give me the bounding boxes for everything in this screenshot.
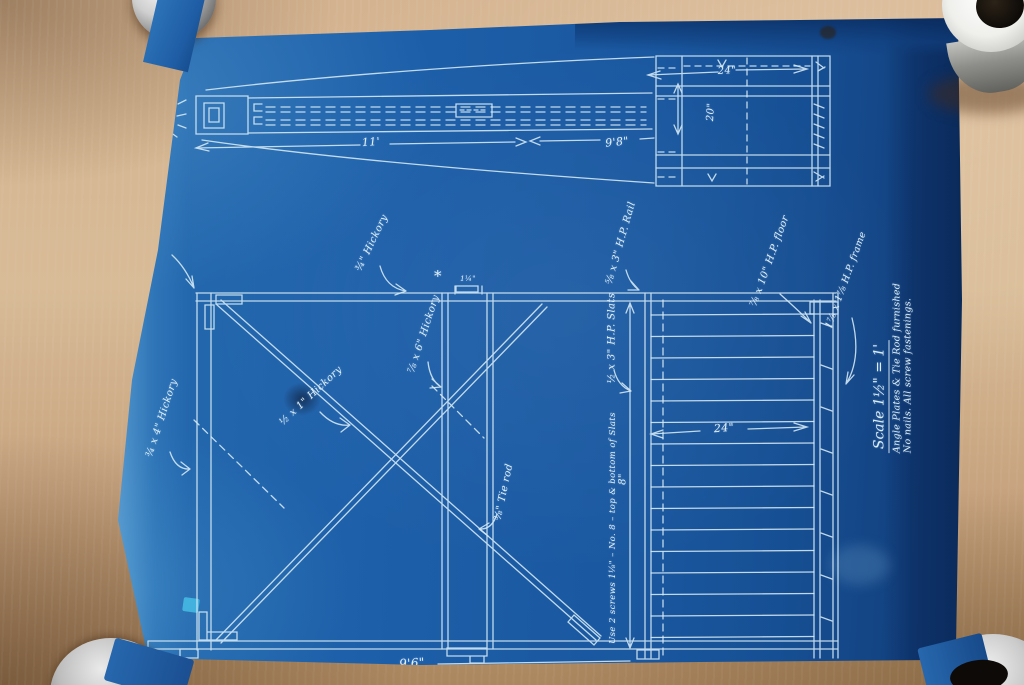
scale-note: Scale 1½" = 1' — [872, 340, 890, 453]
photo-scene: ¾ x 4" Hickory ¾" Hickory * 1¼" ⅞ x 6" H… — [0, 0, 1024, 685]
label-slats: ½ x 3" H.P. Slats — [607, 293, 618, 384]
dim-slat-length: 24" — [713, 421, 734, 435]
dim-beam-to-end: 9'8" — [605, 134, 630, 149]
dim-beam-length: 11' — [361, 135, 380, 149]
dim-end-view-height: 20" — [705, 102, 717, 121]
materials-note-2: No nails. All screw fastenings. — [903, 283, 914, 453]
materials-note-1: Angle Plates & Tie Rod furnished — [892, 283, 903, 453]
dim-end-view-width: 24" — [717, 65, 736, 77]
label-star-mark: * — [434, 267, 442, 285]
note-screws: Use 2 screws 1⅛" – No. 8 – top & bottom … — [608, 412, 618, 644]
dim-cleat-width: 1¼" — [460, 275, 476, 283]
dim-slat-gauge: 8" — [618, 473, 629, 485]
